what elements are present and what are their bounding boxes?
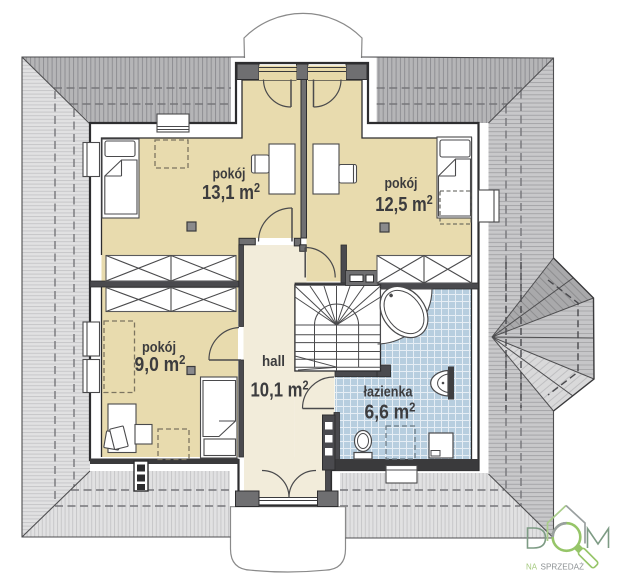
svg-text:6,6 m2: 6,6 m2 (365, 400, 416, 424)
svg-text:pokój: pokój (385, 175, 418, 192)
svg-text:13,1 m2: 13,1 m2 (202, 180, 260, 204)
svg-text:10,1 m2: 10,1 m2 (251, 378, 309, 402)
svg-text:SPRZEDAŻ: SPRZEDAŻ (541, 563, 585, 572)
svg-text:łazienka: łazienka (364, 384, 414, 401)
svg-text:NA: NA (526, 563, 538, 572)
svg-text:pokój: pokój (213, 166, 246, 183)
svg-text:9,0 m2: 9,0 m2 (135, 352, 186, 376)
svg-text:hall: hall (262, 353, 285, 370)
svg-text:12,5 m2: 12,5 m2 (375, 192, 433, 216)
